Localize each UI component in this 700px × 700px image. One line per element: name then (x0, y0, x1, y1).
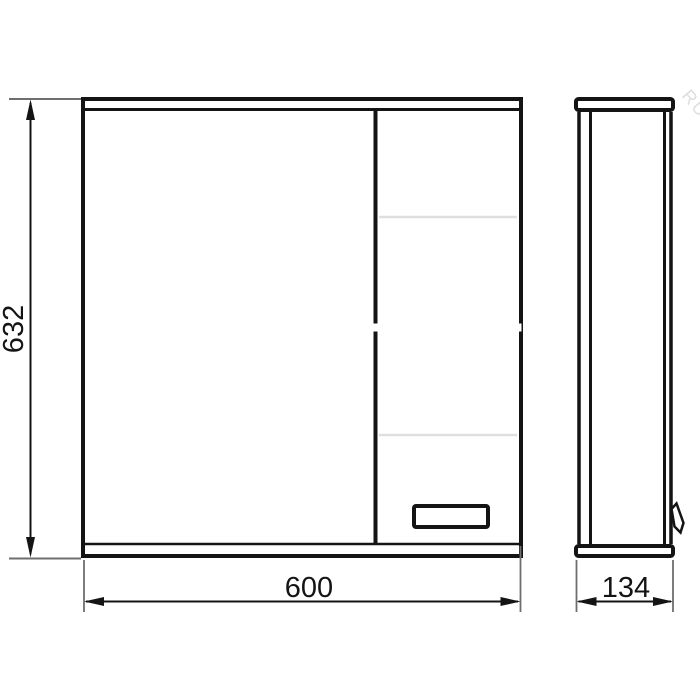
dim-depth-label: 134 (602, 572, 650, 604)
dim-width-label: 600 (285, 572, 333, 604)
side-door-handle-hook (672, 504, 684, 533)
dim-height-arrow-down-icon (26, 537, 35, 558)
technical-drawing-canvas: 632 600 134 RU (0, 0, 700, 700)
mirror-cabinet-dimension-drawing: 632 600 134 RU (0, 0, 700, 700)
shelf-pin-notch-left (374, 324, 379, 332)
front-handle-plate (414, 506, 488, 527)
dim-width-arrow-right-icon (501, 597, 521, 606)
dim-depth-arrow-right-icon (653, 597, 673, 606)
front-view (82, 99, 522, 556)
dim-depth-arrow-left-icon (577, 597, 597, 606)
side-top-cap (576, 99, 673, 110)
side-bottom-cap (576, 546, 673, 556)
watermark-text: RU (678, 86, 700, 122)
side-view (576, 99, 684, 556)
shelf-pin-notch-right (517, 324, 522, 332)
dim-depth: 134 (577, 560, 674, 612)
front-outer-frame (83, 99, 521, 556)
dim-height-arrow-up-icon (26, 100, 35, 121)
dim-height-label: 632 (0, 305, 30, 353)
dim-width-arrow-left-icon (84, 597, 104, 606)
dim-height: 632 (0, 99, 81, 559)
